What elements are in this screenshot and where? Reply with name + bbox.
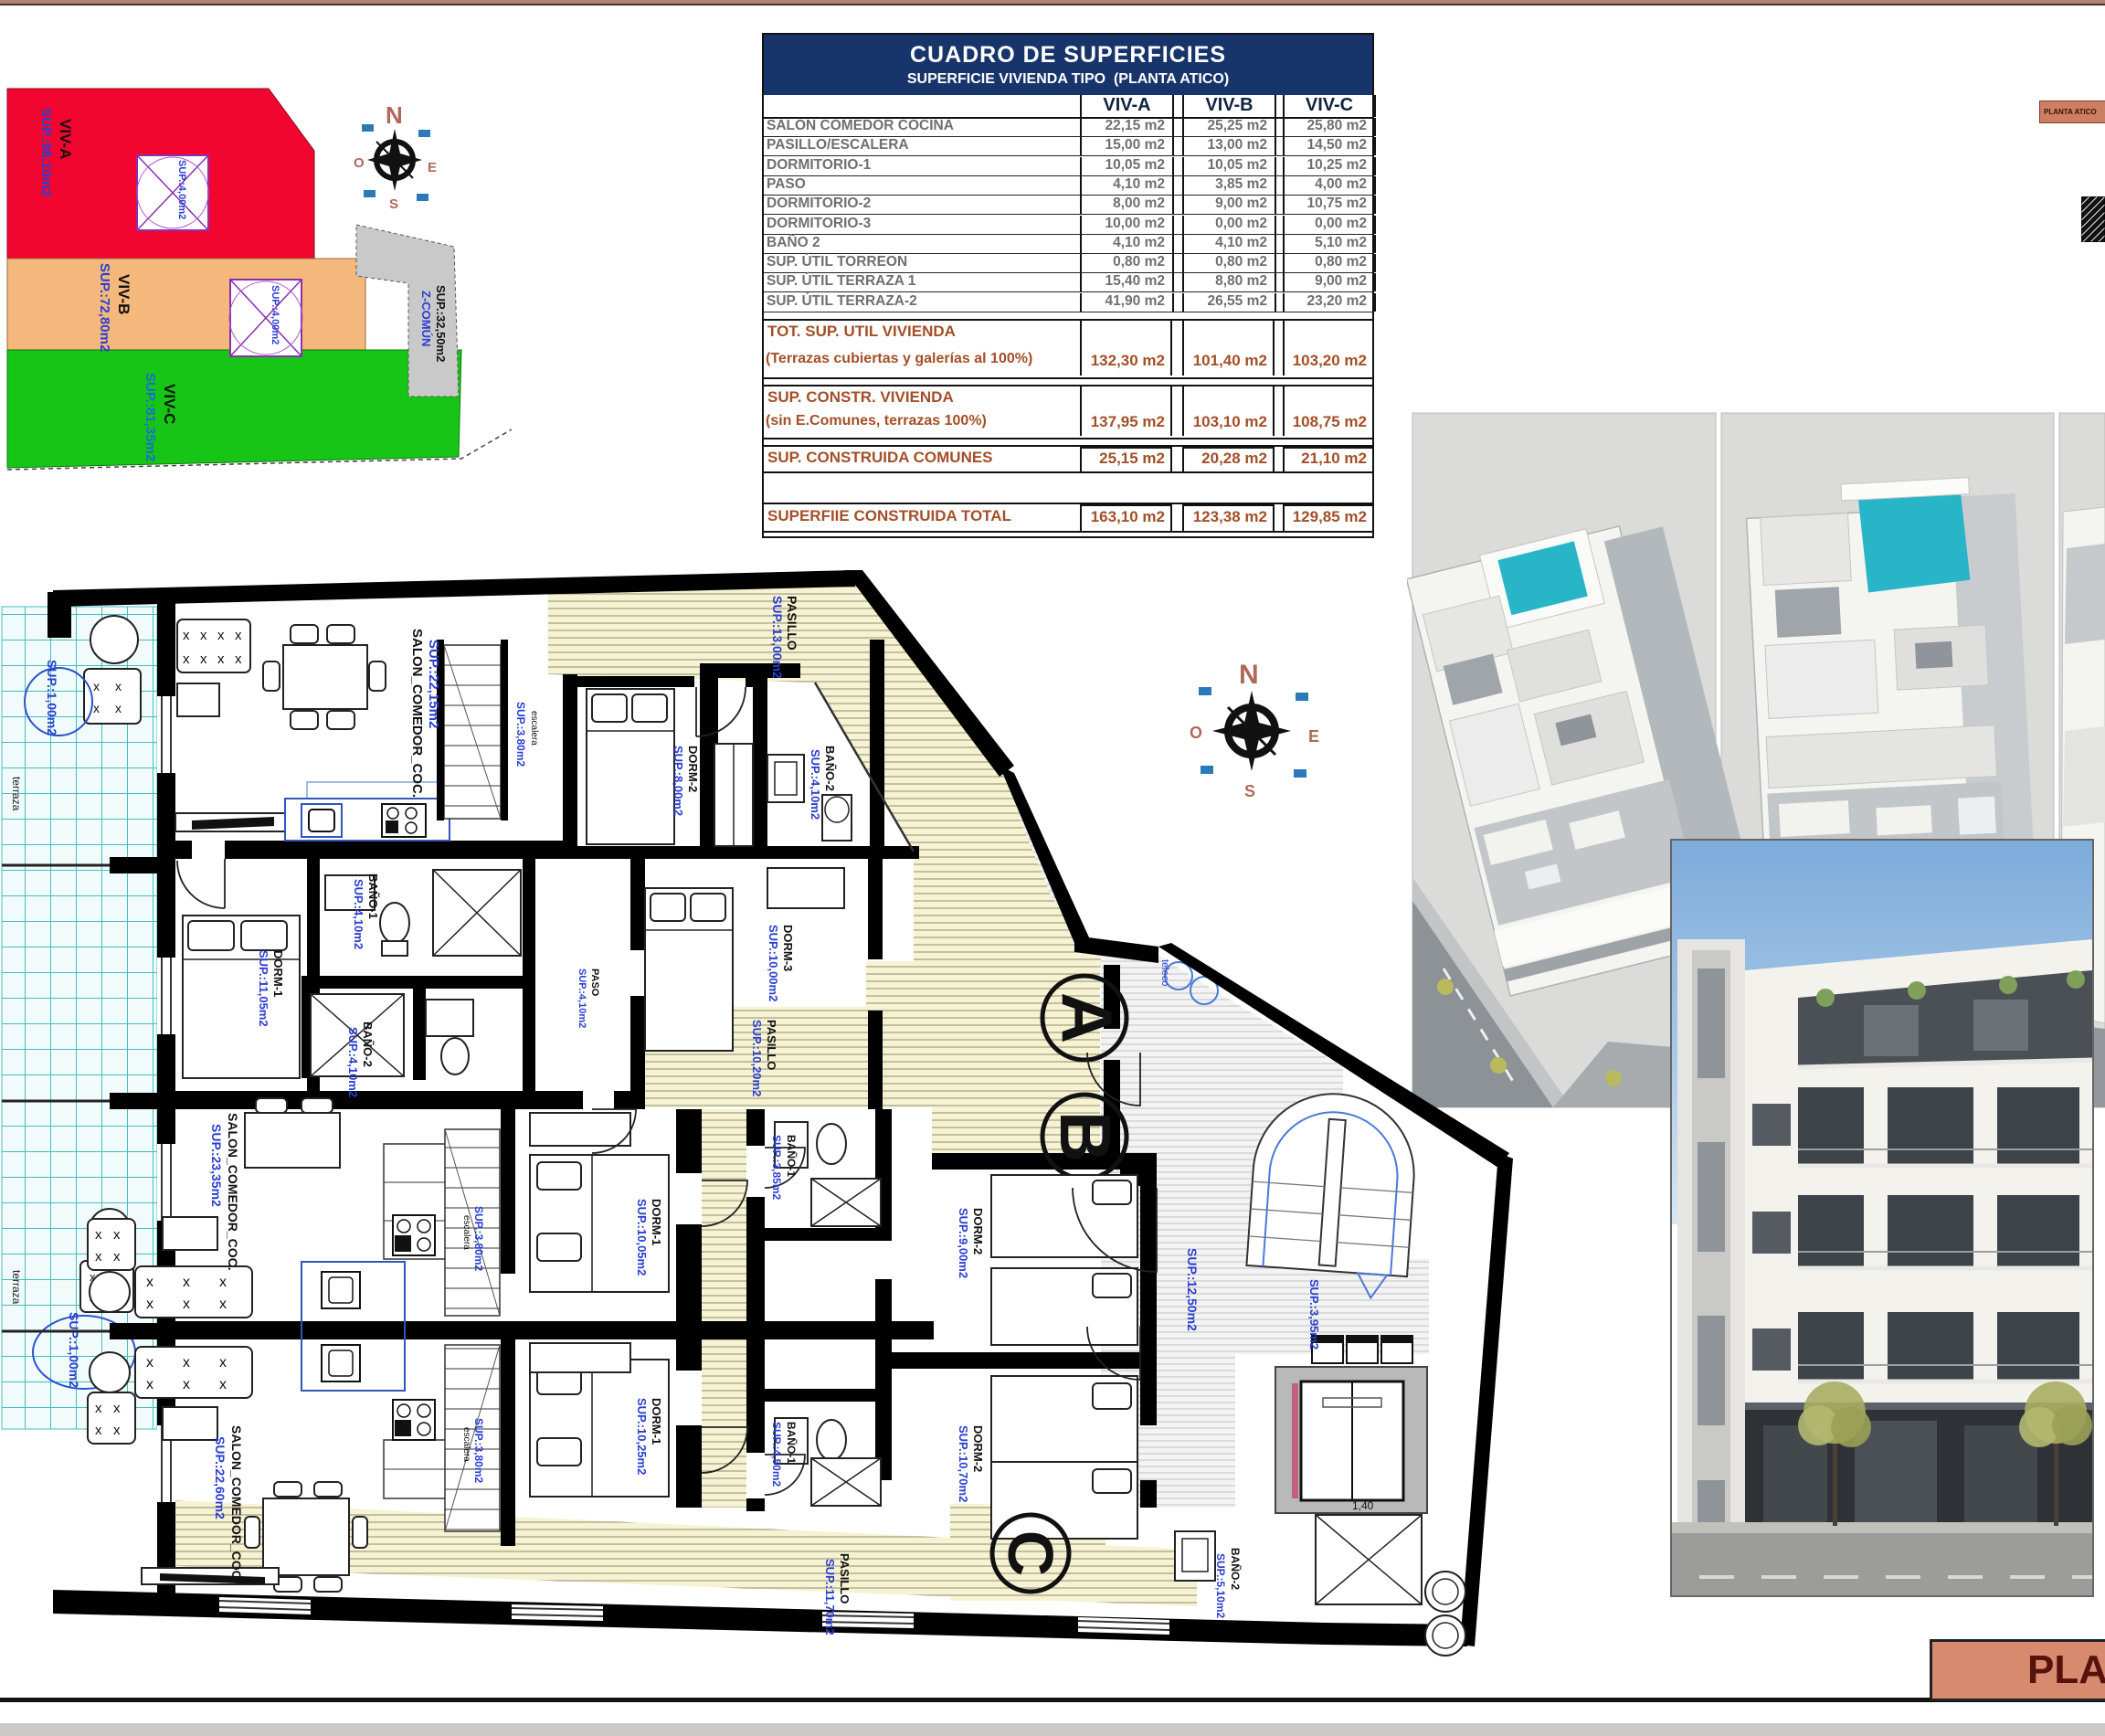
svg-text:SUP.:1,00m2: SUP.:1,00m2 [45,660,59,736]
svg-text:O: O [354,155,365,171]
svg-text:BAÑO-2: BAÑO-2 [361,1021,375,1067]
svg-text:x: x [183,1377,190,1392]
svg-text:BAÑO-1: BAÑO-1 [785,1422,799,1464]
svg-text:escalera: escalera [529,711,539,746]
svg-text:DORM-2: DORM-2 [971,1208,985,1254]
svg-text:terraza: terraza [10,1270,23,1305]
svg-text:SUP.:11,70m2: SUP.:11,70m2 [823,1559,837,1635]
svg-text:Z-COMÚN: Z-COMÚN [419,291,433,346]
svg-text:terraza: terraza [10,777,23,811]
svg-text:x: x [146,1297,153,1312]
svg-text:x: x [183,1355,190,1371]
svg-text:SUP.:4,00m2: SUP.:4,00m2 [270,285,280,344]
svg-text:SUP.:72,80m2: SUP.:72,80m2 [97,263,112,352]
svg-text:O: O [1190,724,1202,742]
svg-text:SUP.:3,80m2: SUP.:3,80m2 [472,1206,485,1271]
svg-text:VIV-B: VIV-B [115,274,132,314]
svg-text:SUP.:4,00m2: SUP.:4,00m2 [176,160,187,219]
svg-text:S: S [389,196,398,212]
svg-text:x: x [235,628,242,643]
svg-text:SUP.:98,10m2: SUP.:98,10m2 [38,108,54,196]
svg-text:x: x [93,701,100,715]
svg-text:BAÑO-1: BAÑO-1 [785,1135,799,1177]
svg-text:SALON_COMEDOR_COC.: SALON_COMEDOR_COC. [409,629,425,798]
svg-text:x: x [235,651,242,667]
svg-text:PASILLO: PASILLO [838,1553,852,1604]
svg-text:DORM-1: DORM-1 [650,1199,663,1245]
svg-text:DORM-2: DORM-2 [686,746,700,792]
svg-text:x: x [219,1275,227,1290]
svg-text:escalera: escalera [461,1427,471,1462]
svg-text:SUP.:9,00m2: SUP.:9,00m2 [957,1208,970,1278]
svg-text:DORM-1: DORM-1 [271,950,285,997]
svg-text:PASO: PASO [589,969,600,997]
svg-text:SUP.:4,10m2: SUP.:4,10m2 [346,1027,360,1097]
svg-text:x: x [200,651,207,667]
svg-text:C: C [995,1530,1066,1577]
svg-text:x: x [113,1249,121,1265]
svg-text:VIV-A: VIV-A [57,119,74,159]
svg-text:PASILLO: PASILLO [785,596,799,651]
svg-text:1,40: 1,40 [1352,1499,1374,1512]
svg-text:escalera: escalera [461,1215,471,1250]
svg-text:SUP.:3,85m2: SUP.:3,85m2 [770,1135,783,1200]
svg-text:E: E [428,160,437,175]
svg-text:SUP.:3,80m2: SUP.:3,80m2 [514,702,527,767]
svg-text:x: x [115,679,122,693]
svg-text:x: x [219,1377,227,1392]
svg-text:SUP.:22,60m2: SUP.:22,60m2 [213,1436,227,1519]
svg-text:x: x [146,1355,153,1371]
svg-text:x: x [146,1377,153,1392]
svg-text:PASILLO: PASILLO [765,1020,778,1070]
svg-text:E: E [1308,727,1319,746]
svg-text:SALON_COMEDOR_COC.: SALON_COMEDOR_COC. [226,1113,240,1271]
svg-text:SUP.:4,10m2: SUP.:4,10m2 [576,969,587,1028]
svg-text:DORM-2: DORM-2 [971,1425,985,1472]
svg-text:SUP.:5,10m2: SUP.:5,10m2 [1214,1553,1227,1618]
svg-text:x: x [115,701,122,715]
svg-text:SUP.:10,20m2: SUP.:10,20m2 [750,1020,764,1096]
svg-text:SUP.:13,00m2: SUP.:13,00m2 [770,596,785,679]
svg-text:x: x [200,628,207,643]
svg-text:x: x [95,1401,102,1416]
svg-text:x: x [95,1249,102,1265]
svg-text:BAÑO-1: BAÑO-1 [366,873,380,919]
svg-text:x: x [113,1401,121,1416]
svg-text:x: x [217,628,225,643]
svg-text:N: N [386,101,403,129]
svg-text:SUP.:1,00m2: SUP.:1,00m2 [67,1312,81,1388]
svg-text:DORM-3: DORM-3 [781,925,795,971]
svg-text:SUP.:32,50m2: SUP.:32,50m2 [434,285,448,362]
svg-text:teleco: teleco [1159,959,1170,986]
svg-text:x: x [217,651,225,667]
svg-text:SUP.:4,50m2: SUP.:4,50m2 [770,1422,783,1487]
svg-text:VIV-C: VIV-C [161,384,178,424]
svg-text:SALON_COMEDOR_COC.: SALON_COMEDOR_COC. [229,1425,244,1583]
svg-text:SUP.:3,80m2: SUP.:3,80m2 [472,1418,485,1483]
svg-text:DORM-1: DORM-1 [650,1398,663,1445]
svg-text:x: x [113,1423,121,1438]
svg-text:SUP.:10,05m2: SUP.:10,05m2 [635,1199,649,1276]
svg-text:SUP.:23,35m2: SUP.:23,35m2 [209,1124,224,1207]
svg-text:x: x [113,1227,121,1243]
svg-text:SUP.:22,15m2: SUP.:22,15m2 [426,640,441,728]
svg-text:SUP.:4,10m2: SUP.:4,10m2 [809,749,822,820]
svg-text:A: A [1047,992,1127,1043]
svg-text:SUP.:3,95m2: SUP.:3,95m2 [1307,1279,1321,1350]
svg-text:x: x [95,1423,102,1438]
svg-text:N: N [1239,660,1259,690]
svg-text:SUP.:12,50m2: SUP.:12,50m2 [1185,1248,1200,1331]
svg-text:BAÑO-2: BAÑO-2 [823,746,837,791]
svg-text:S: S [1244,782,1255,800]
svg-text:x: x [219,1297,227,1312]
svg-text:SUP.:10,00m2: SUP.:10,00m2 [767,925,780,1001]
svg-text:x: x [183,628,190,643]
svg-text:x: x [93,679,100,693]
svg-text:SUP.:81,35m2: SUP.:81,35m2 [143,373,158,461]
svg-text:x: x [183,651,190,667]
svg-text:x: x [183,1275,190,1290]
svg-text:SUP.:8,00m2: SUP.:8,00m2 [672,746,685,816]
svg-text:x: x [183,1297,190,1312]
svg-text:x: x [146,1275,153,1290]
svg-text:SUP.:10,70m2: SUP.:10,70m2 [957,1425,970,1502]
svg-text:SUP.:11,05m2: SUP.:11,05m2 [257,950,270,1027]
svg-text:x: x [219,1355,227,1371]
svg-text:SUP.:10,25m2: SUP.:10,25m2 [635,1398,649,1475]
svg-text:SUP.:4,10m2: SUP.:4,10m2 [352,879,365,949]
svg-text:B: B [1045,1111,1126,1162]
svg-text:BAÑO-2: BAÑO-2 [1229,1548,1243,1590]
svg-text:x: x [95,1227,102,1243]
